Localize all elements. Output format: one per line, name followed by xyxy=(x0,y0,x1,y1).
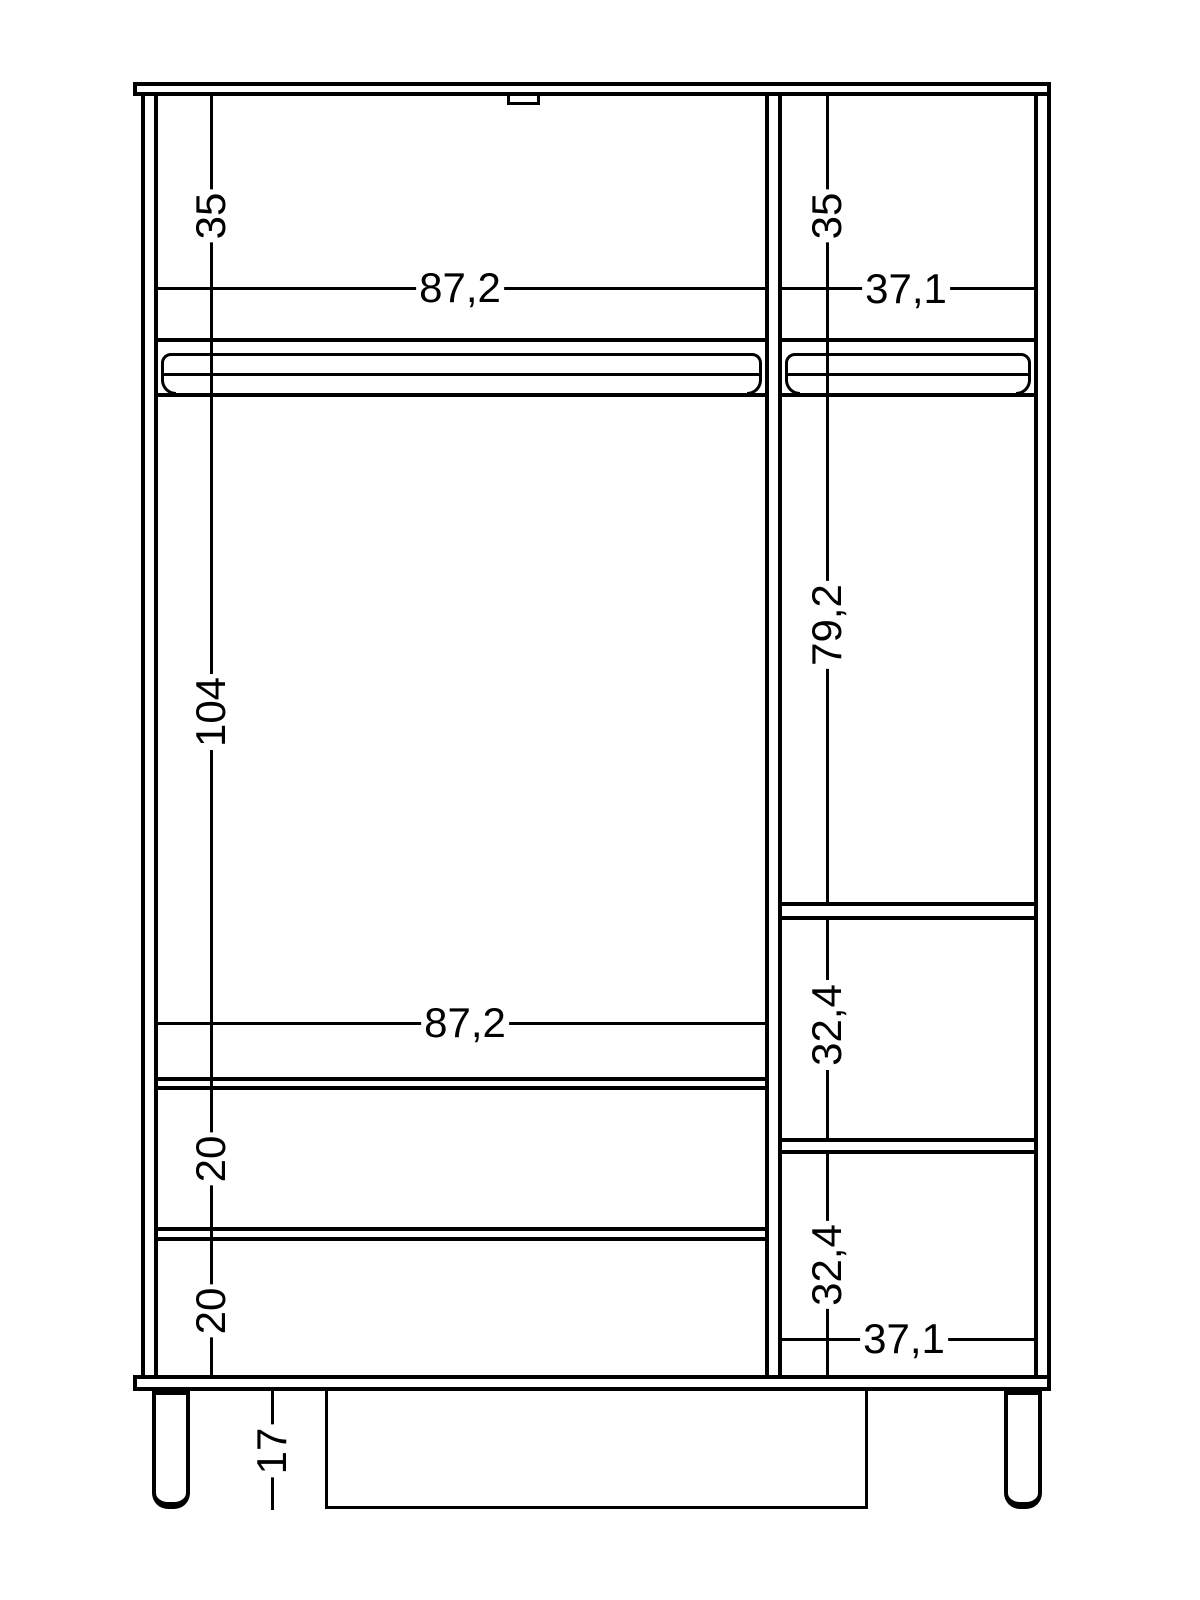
dim-label-left-hanging-height: 104 xyxy=(189,674,233,750)
leg-dim-line-seg-2 xyxy=(271,1473,274,1510)
top-panel xyxy=(133,82,1051,96)
right-side-panel xyxy=(1034,96,1051,1375)
dim-label-leg-height: 17 xyxy=(250,1425,294,1478)
dim-label-right-cubby1-height: 32,4 xyxy=(805,981,849,1069)
dim-label-top-left-height: 35 xyxy=(189,190,233,243)
right-clothes-rail xyxy=(785,353,1031,376)
right-dim-line-seg-1 xyxy=(826,96,829,193)
dim-label-left-width-bottom: 87,2 xyxy=(421,1001,509,1045)
left-dim-line-seg-5 xyxy=(210,1335,213,1375)
dim-label-drawer2-height: 20 xyxy=(189,1285,233,1338)
left-shelf-between-drawers xyxy=(158,1227,765,1241)
left-rail-bottom-line xyxy=(158,393,765,397)
left-dim-line-seg-2 xyxy=(210,240,213,678)
dim-label-left-width-top: 87,2 xyxy=(416,266,504,310)
right-top-shelf-line xyxy=(782,338,1034,342)
dim-label-right-width-bottom: 37,1 xyxy=(860,1317,948,1361)
right-shelf-upper xyxy=(782,902,1034,920)
right-dim-line-seg-5 xyxy=(826,1070,829,1138)
left-shelf-above-drawers xyxy=(158,1077,765,1090)
left-dim-line-seg-1 xyxy=(210,96,213,193)
plinth-panel xyxy=(325,1391,868,1509)
left-clothes-rail xyxy=(161,353,762,376)
right-rail-bracket-left xyxy=(785,373,800,395)
dim-label-drawer1-height: 20 xyxy=(189,1133,233,1186)
bottom-panel xyxy=(133,1375,1051,1391)
dim-label-right-width-top: 37,1 xyxy=(862,267,950,311)
dim-label-top-right-height: 35 xyxy=(805,190,849,243)
right-dim-line-seg-6 xyxy=(826,1153,829,1223)
right-dim-line-seg-2 xyxy=(826,240,829,588)
left-rail-bracket-left xyxy=(161,373,176,395)
right-rail-bottom-line xyxy=(782,393,1034,397)
top-connector-notch xyxy=(507,96,540,105)
dim-label-right-hanging-height: 79,2 xyxy=(805,581,849,669)
left-dim-line-seg-3 xyxy=(210,747,213,1135)
right-leg xyxy=(1004,1391,1042,1509)
left-rail-bracket-right xyxy=(747,373,762,395)
dim-label-right-cubby2-height: 32,4 xyxy=(805,1221,849,1309)
left-top-shelf-line xyxy=(158,338,765,342)
right-shelf-lower xyxy=(782,1138,1034,1154)
left-side-panel xyxy=(141,96,158,1375)
left-dim-line-seg-4 xyxy=(210,1183,213,1287)
right-dim-line-seg-7 xyxy=(826,1307,829,1375)
right-dim-line-seg-4 xyxy=(826,919,829,980)
center-partition-panel xyxy=(765,96,782,1375)
left-leg xyxy=(152,1391,190,1509)
right-rail-bracket-right xyxy=(1016,373,1031,395)
right-dim-line-seg-3 xyxy=(826,663,829,902)
dimension-drawing: 35 35 87,2 37,1 104 79,2 32,4 32,4 87,2 … xyxy=(0,0,1200,1600)
